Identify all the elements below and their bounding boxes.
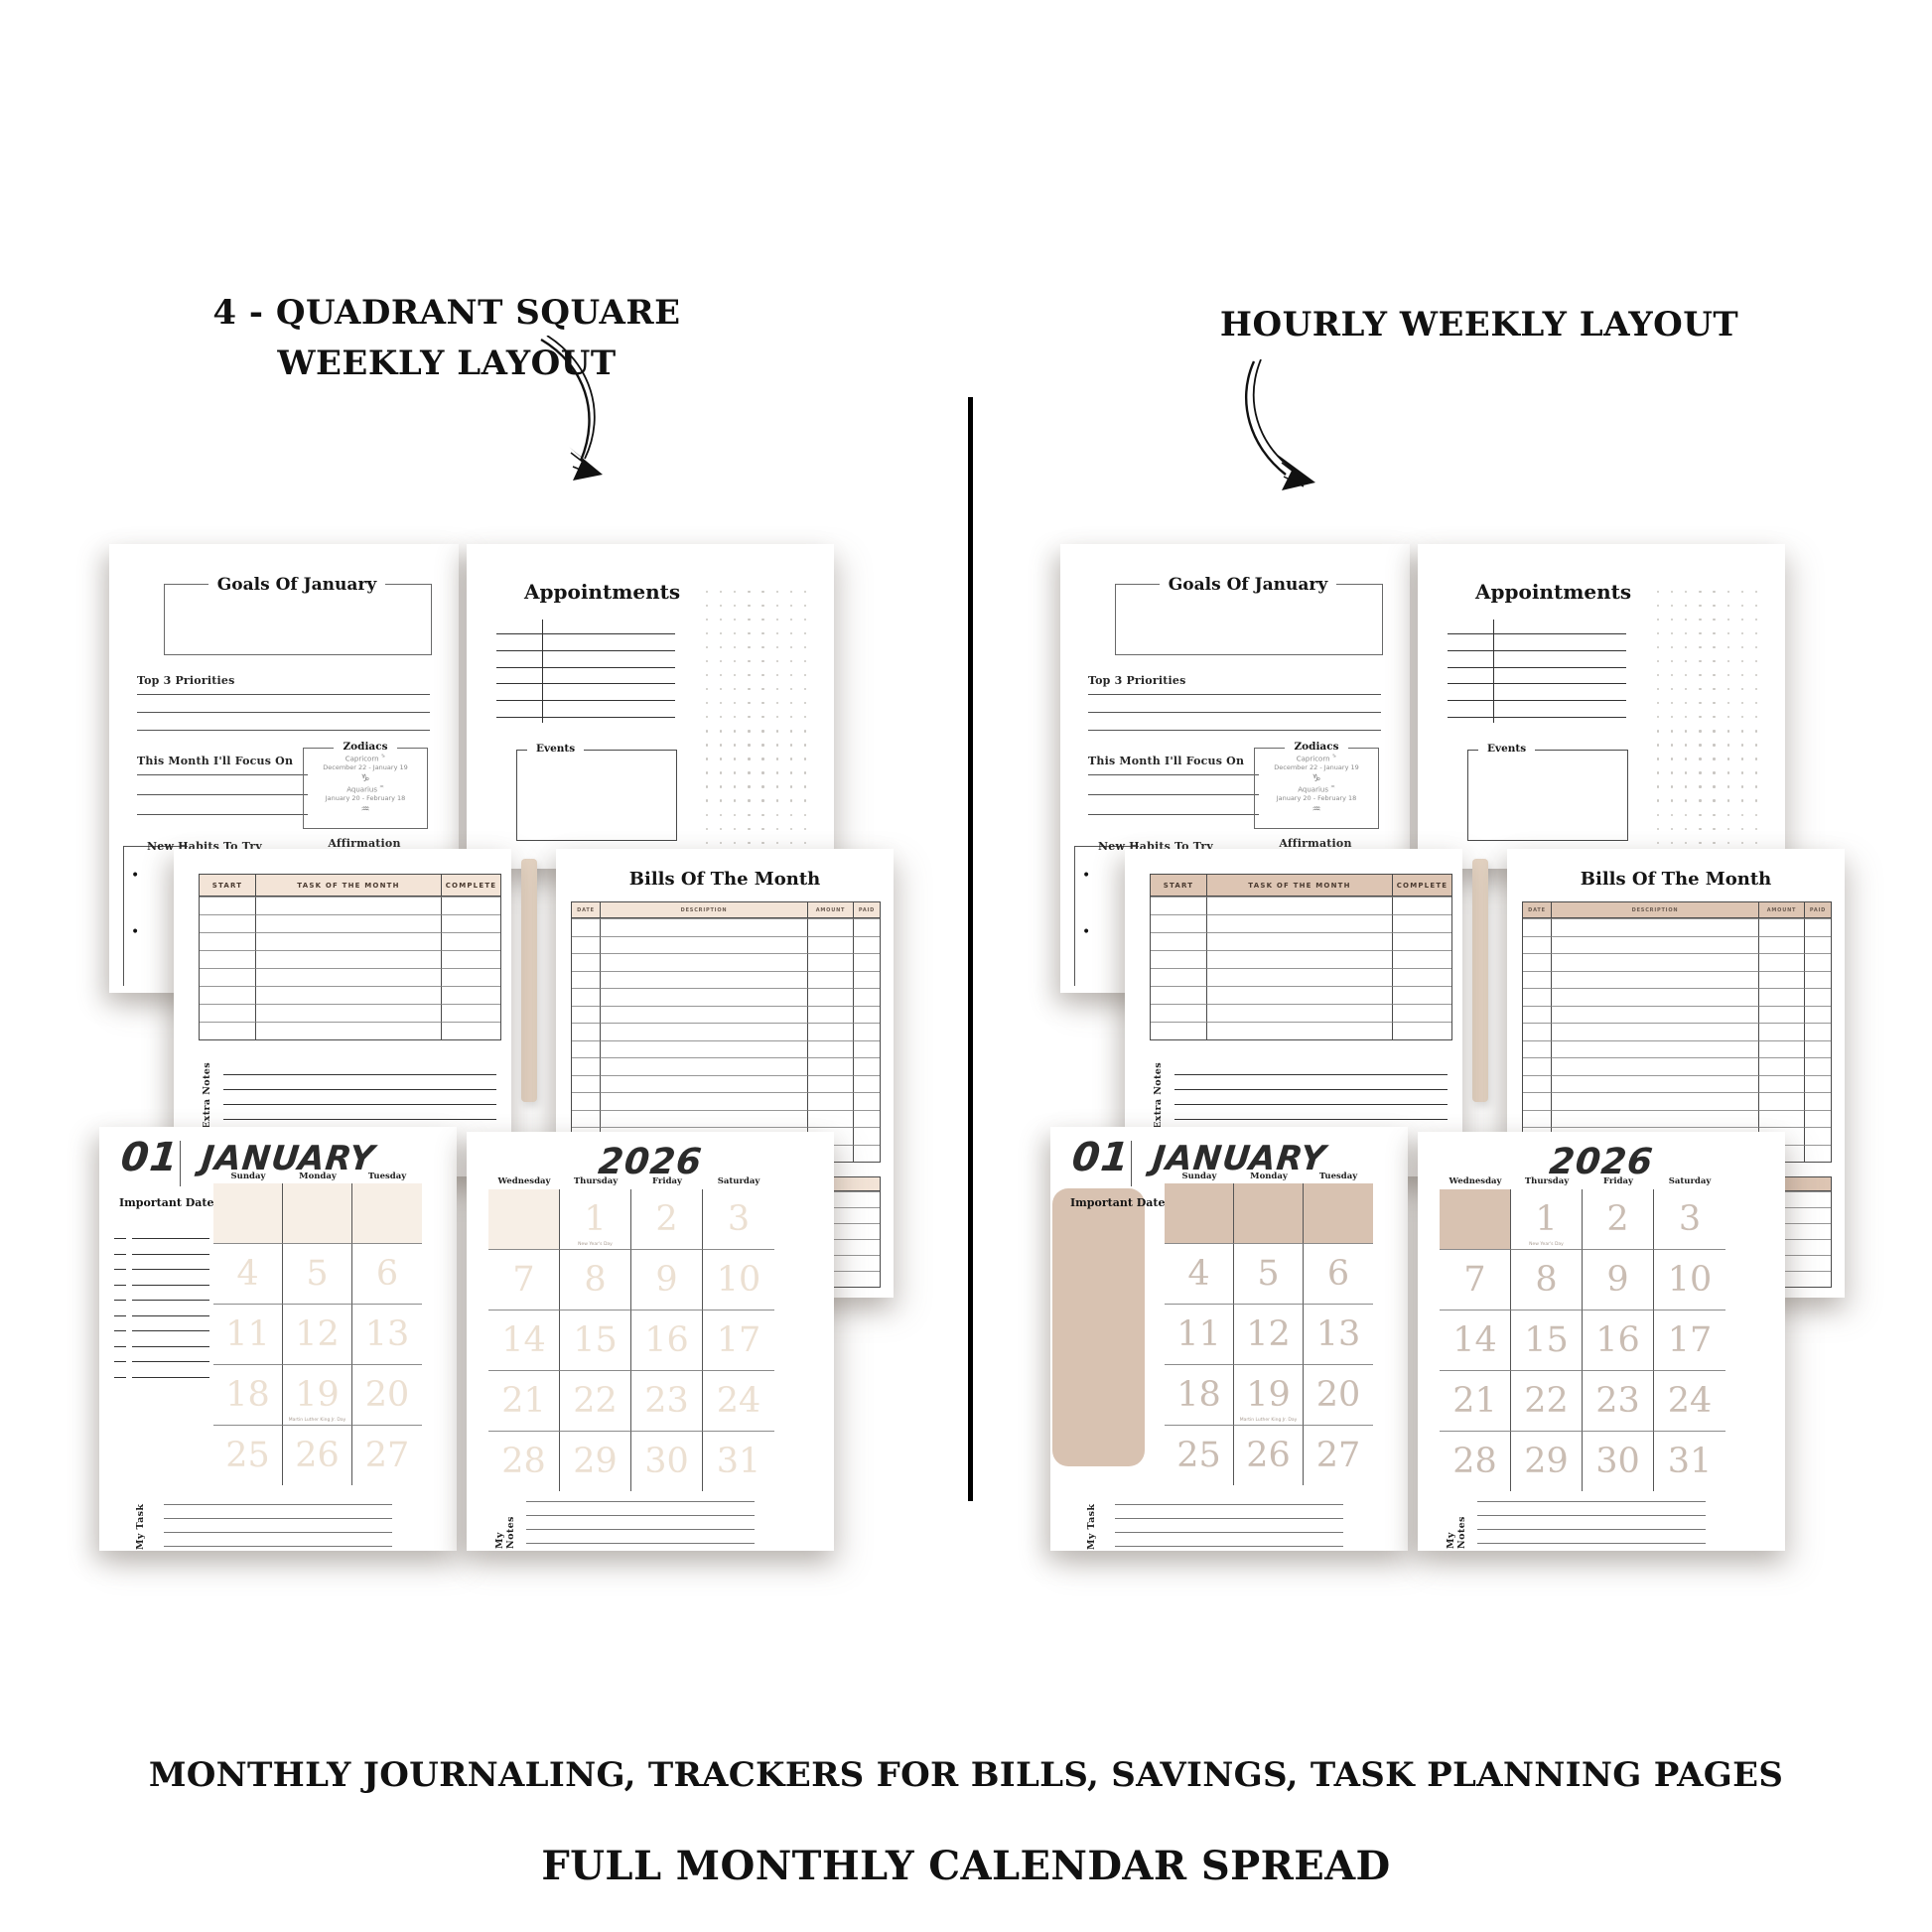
- date-number: 14: [1452, 1320, 1497, 1360]
- grid-dot: [1755, 744, 1757, 746]
- focus-lines: [137, 774, 308, 834]
- grid-dot: [1685, 605, 1687, 607]
- table-empty-cell: [600, 988, 807, 1006]
- day-header-label: Wednesday: [1440, 1176, 1511, 1186]
- grid-dot: [1727, 619, 1729, 621]
- table-empty-cell: [853, 1110, 880, 1128]
- grid-dot: [1727, 632, 1729, 634]
- grid-dot: [1741, 799, 1743, 801]
- grid-dot: [1727, 771, 1729, 773]
- table-empty-cell: [255, 968, 441, 986]
- grid-dot: [1727, 702, 1729, 704]
- grid-dot: [776, 814, 778, 816]
- calendar-cell: 16: [631, 1310, 703, 1370]
- events-label: Events: [527, 743, 584, 755]
- grid-dot: [748, 758, 750, 759]
- grid-dot: [790, 799, 792, 801]
- table-empty-cell: [255, 914, 441, 932]
- checkbox-dash: [114, 1285, 126, 1286]
- table-empty-cell: [600, 971, 807, 989]
- calendar-cell: 15: [560, 1310, 631, 1370]
- grid-dot: [761, 799, 763, 801]
- grid-dot: [790, 591, 792, 593]
- table-empty-cell: [1758, 953, 1804, 971]
- header-divider-line: [180, 1141, 181, 1186]
- bills-table: DATEDESCRIPTIONAMOUNTPAID: [571, 901, 881, 1163]
- date-number: 9: [655, 1260, 677, 1300]
- important-date-line: [114, 1315, 209, 1317]
- table-empty-cell: [807, 1057, 853, 1075]
- important-date-line: [114, 1346, 209, 1348]
- table-empty-cell: [441, 932, 500, 950]
- grid-dot: [734, 619, 736, 621]
- date-number: 24: [1668, 1381, 1713, 1421]
- calendar-cell: 8: [560, 1249, 631, 1310]
- table-empty-cell: [1551, 1110, 1758, 1128]
- table-empty-cell: [853, 1092, 880, 1110]
- grid-dot: [1713, 771, 1715, 773]
- table-empty-cell: [441, 1004, 500, 1022]
- table-header-cell: PAID: [853, 902, 880, 918]
- grid-dot: [706, 730, 708, 732]
- table-empty-cell: [1523, 1040, 1551, 1058]
- table-empty-cell: [1392, 1022, 1451, 1039]
- table-empty-cell: [572, 936, 600, 954]
- vertical-divider: [968, 397, 973, 1501]
- grid-dot: [761, 758, 763, 759]
- grid-dot: [1671, 842, 1673, 844]
- grid-dot: [1713, 828, 1715, 830]
- grid-dot: [1685, 771, 1687, 773]
- grid-dot: [1699, 730, 1701, 732]
- checkbox-dash: [114, 1238, 126, 1239]
- table-header-cell: AMOUNT: [807, 902, 853, 918]
- page-edge-strip: [1472, 859, 1488, 1102]
- grid-dot: [1685, 688, 1687, 690]
- grid-dot: [790, 771, 792, 773]
- grid-dot: [1755, 785, 1757, 787]
- table-empty-cell: [1551, 1075, 1758, 1093]
- calendar-cell: 30: [1583, 1431, 1654, 1491]
- calendar-cell: [1165, 1183, 1234, 1243]
- hourly-layout-group: Goals Of January Top 3 Priorities This M…: [1045, 536, 1860, 1564]
- grid-dot: [1657, 619, 1659, 621]
- grid-dot: [734, 688, 736, 690]
- grid-dot: [720, 814, 722, 816]
- grid-dot: [734, 814, 736, 816]
- grid-dot: [804, 605, 806, 607]
- table-empty-cell: [1804, 918, 1831, 936]
- grid-dot: [776, 660, 778, 662]
- calendar-cell: 5: [283, 1243, 352, 1304]
- grid-dot: [790, 828, 792, 830]
- table-empty-cell: [1758, 1006, 1804, 1024]
- grid-dot: [1699, 660, 1701, 662]
- rule-line: [1115, 1546, 1343, 1547]
- table-empty-cell: [1523, 936, 1551, 954]
- rule-line: [137, 814, 308, 815]
- table-empty-cell: [1804, 1145, 1831, 1163]
- grid-dot: [1755, 758, 1757, 759]
- rule-line: [526, 1529, 755, 1530]
- date-number: 3: [728, 1199, 750, 1239]
- grid-dot: [1713, 688, 1715, 690]
- rule-line: [496, 667, 675, 668]
- rule-line: [1477, 1515, 1706, 1516]
- date-number: 16: [1595, 1320, 1640, 1360]
- hand-drawn-arrow-icon: [531, 336, 625, 499]
- grid-dot: [1685, 674, 1687, 676]
- weekday-headers: WednesdayThursdayFridaySaturday: [488, 1176, 774, 1186]
- table-empty-cell: [853, 1075, 880, 1093]
- calendar-cell: [213, 1183, 283, 1243]
- grid-dot: [734, 632, 736, 634]
- checkbox-dash: [114, 1377, 126, 1378]
- date-number: 5: [1257, 1254, 1279, 1294]
- table-empty-cell: [600, 936, 807, 954]
- date-number: 24: [717, 1381, 761, 1421]
- grid-dot: [1671, 646, 1673, 648]
- grid-dot: [1755, 632, 1757, 634]
- table-empty-cell: [1758, 918, 1804, 936]
- focus-label: This Month I'll Focus On: [137, 755, 293, 767]
- grid-dot: [1657, 591, 1659, 593]
- calendar-cell: 19Martin Luther King Jr. Day: [1234, 1364, 1304, 1425]
- rule-line: [1088, 774, 1259, 775]
- date-number: 4: [236, 1254, 258, 1294]
- date-number: 21: [501, 1381, 546, 1421]
- table-empty-cell: [807, 1040, 853, 1058]
- grid-dot: [706, 716, 708, 718]
- day-header-label: Monday: [283, 1172, 352, 1181]
- checkbox-dash: [114, 1361, 126, 1362]
- table-empty-cell: [1551, 988, 1758, 1006]
- holiday-label: Martin Luther King Jr. Day: [283, 1418, 351, 1423]
- table-empty-cell: [1523, 1110, 1551, 1128]
- calendar-cell: 6: [352, 1243, 422, 1304]
- important-dates-lines: [114, 1238, 209, 1392]
- grid-dot: [1727, 674, 1729, 676]
- table-empty-cell: [1392, 914, 1451, 932]
- grid-dot: [1741, 730, 1743, 732]
- table-empty-cell: [1758, 1023, 1804, 1040]
- grid-dot: [1755, 702, 1757, 704]
- grid-dot: [1685, 828, 1687, 830]
- grid-dot: [1685, 632, 1687, 634]
- grid-dot: [1657, 688, 1659, 690]
- grid-dot: [790, 605, 792, 607]
- zodiacs-box: Zodiacs Capricorn ♑ December 22 - Januar…: [303, 748, 428, 829]
- calendar-cell: 25: [1165, 1425, 1234, 1485]
- calendar-cell: [488, 1189, 560, 1249]
- date-number: 6: [1327, 1254, 1349, 1294]
- grid-dot: [1727, 828, 1729, 830]
- table-empty-cell: [1804, 1040, 1831, 1058]
- grid-dot: [1727, 591, 1729, 593]
- grid-dot: [776, 591, 778, 593]
- grid-dot: [720, 646, 722, 648]
- calendar-cell: 26: [1234, 1425, 1304, 1485]
- rule-line: [526, 1543, 755, 1544]
- grid-dot: [734, 660, 736, 662]
- table-empty-cell: [807, 1110, 853, 1128]
- calendar-cell: 4: [1165, 1243, 1234, 1304]
- calendar-cell: 7: [1440, 1249, 1511, 1310]
- date-number: 18: [225, 1375, 270, 1415]
- calendar-cell: 20: [352, 1364, 422, 1425]
- grid-dot: [761, 814, 763, 816]
- calendar-cell: 23: [631, 1370, 703, 1431]
- table-empty-cell: [1206, 950, 1392, 968]
- day-header-label: Sunday: [1165, 1172, 1234, 1181]
- goals-title-text: Goals Of January: [1160, 575, 1337, 595]
- rule-line: [1088, 814, 1259, 815]
- grid-dot: [706, 674, 708, 676]
- grid-dot: [1685, 591, 1687, 593]
- grid-dot: [1713, 619, 1715, 621]
- table-empty-cell: [1523, 988, 1551, 1006]
- table-empty-cell: [1804, 953, 1831, 971]
- date-number: 27: [1316, 1436, 1361, 1475]
- table-empty-cell: [1523, 1006, 1551, 1024]
- grid-dot: [761, 688, 763, 690]
- grid-dot: [804, 702, 806, 704]
- rule-line: [137, 694, 430, 695]
- table-empty-cell: [1206, 897, 1392, 914]
- table-empty-cell: [1206, 914, 1392, 932]
- table-empty-cell: [600, 1057, 807, 1075]
- rule-line: [1088, 730, 1381, 731]
- goals-title: Goals Of January: [144, 575, 450, 595]
- table-empty-cell: [255, 932, 441, 950]
- day-header-label: Wednesday: [488, 1176, 560, 1186]
- calendar-cell: 10: [1654, 1249, 1725, 1310]
- write-line: [132, 1269, 209, 1270]
- grid-dot: [748, 605, 750, 607]
- table-header-cell: COMPLETE: [1392, 875, 1451, 897]
- grid-dot: [1727, 716, 1729, 718]
- grid-dot: [1671, 744, 1673, 746]
- table-header-cell: TASK OF THE MONTH: [1206, 875, 1392, 897]
- grid-dot: [734, 758, 736, 759]
- my-notes-label: My Notes: [1446, 1499, 1467, 1549]
- grid-dot: [1741, 785, 1743, 787]
- grid-dot: [1699, 814, 1701, 816]
- grid-dot: [734, 771, 736, 773]
- calendar-cell: 31: [1654, 1431, 1725, 1491]
- top-priorities-label: Top 3 Priorities: [137, 674, 234, 687]
- grid-dot: [748, 785, 750, 787]
- table-empty-cell: [600, 1006, 807, 1024]
- grid-dot: [734, 702, 736, 704]
- grid-dot: [734, 744, 736, 746]
- rule-line: [1174, 1104, 1448, 1105]
- grid-dot: [1755, 716, 1757, 718]
- grid-dot: [776, 828, 778, 830]
- calendar-cell: 8: [1511, 1249, 1583, 1310]
- calendar-cell: 24: [703, 1370, 774, 1431]
- table-empty-cell: [807, 988, 853, 1006]
- grid-dot: [748, 688, 750, 690]
- table-empty-cell: [1758, 1057, 1804, 1075]
- aquarius-water-bearer-icon: ♒: [1312, 804, 1321, 815]
- date-number: 20: [1316, 1375, 1361, 1415]
- table-empty-cell: [1206, 932, 1392, 950]
- rule-line: [1174, 1119, 1448, 1120]
- grid-dot: [1755, 619, 1757, 621]
- table-empty-cell: [1523, 1075, 1551, 1093]
- calendar-cell: 14: [1440, 1310, 1511, 1370]
- dot-grid: [1651, 591, 1763, 844]
- grid-dot: [720, 632, 722, 634]
- table-empty-cell: [441, 1022, 500, 1039]
- grid-dot: [706, 799, 708, 801]
- grid-dot: [706, 660, 708, 662]
- grid-dot: [734, 716, 736, 718]
- calendar-cell: 12: [1234, 1304, 1304, 1364]
- grid-dot: [720, 730, 722, 732]
- table-empty-cell: [600, 1110, 807, 1128]
- grid-dot: [1699, 716, 1701, 718]
- grid-dot: [804, 814, 806, 816]
- calendar-cell: 28: [488, 1431, 560, 1491]
- rule-line: [1115, 1504, 1343, 1505]
- grid-dot: [1755, 799, 1757, 801]
- grid-dot: [1699, 674, 1701, 676]
- right-headline: HOURLY WEEKLY LAYOUT: [1172, 300, 1787, 350]
- grid-dot: [720, 688, 722, 690]
- table-empty-cell: [441, 950, 500, 968]
- grid-dot: [1657, 744, 1659, 746]
- grid-dot: [1657, 716, 1659, 718]
- table-empty-cell: [1392, 968, 1451, 986]
- grid-dot: [790, 785, 792, 787]
- grid-dot: [761, 674, 763, 676]
- calendar-cell: 18: [213, 1364, 283, 1425]
- extra-notes-lines: [223, 1074, 496, 1134]
- calendar-cell: 21: [488, 1370, 560, 1431]
- table-empty-cell: [255, 1022, 441, 1039]
- grid-dot: [1685, 814, 1687, 816]
- table-empty-cell: [572, 953, 600, 971]
- aquarius-symbol: ♒: [1330, 784, 1334, 790]
- grid-dot: [1685, 716, 1687, 718]
- grid-dot: [706, 744, 708, 746]
- grid-dot: [1741, 619, 1743, 621]
- grid-dot: [720, 674, 722, 676]
- grid-dot: [748, 702, 750, 704]
- grid-dot: [790, 674, 792, 676]
- grid-dot: [1713, 716, 1715, 718]
- habit-bullet: •: [1082, 868, 1090, 884]
- grid-dot: [1685, 785, 1687, 787]
- bills-title: Bills Of The Month: [1507, 869, 1845, 890]
- grid-dot: [1713, 702, 1715, 704]
- calendar-cell: 10: [703, 1249, 774, 1310]
- date-number: 28: [501, 1442, 546, 1481]
- table-empty-cell: [1804, 1006, 1831, 1024]
- grid-dot: [1685, 744, 1687, 746]
- date-number: 23: [1595, 1381, 1640, 1421]
- grid-dot: [1699, 842, 1701, 844]
- grid-dot: [1727, 660, 1729, 662]
- table-empty-cell: [255, 986, 441, 1004]
- holiday-label: Martin Luther King Jr. Day: [1234, 1418, 1303, 1423]
- grid-dot: [1671, 674, 1673, 676]
- calendar-cell: 21: [1440, 1370, 1511, 1431]
- grid-dot: [790, 646, 792, 648]
- header-divider-line: [1131, 1141, 1132, 1186]
- left-headline: 4 - QUADRANT SQUARE WEEKLY LAYOUT: [139, 288, 755, 389]
- table-empty-cell: [572, 1075, 600, 1093]
- rule-line: [223, 1104, 496, 1105]
- grid-dot: [1657, 674, 1659, 676]
- date-number: 7: [1463, 1260, 1485, 1300]
- weekday-headers: SundayMondayTuesday: [213, 1172, 422, 1181]
- bottom-caption-line2: FULL MONTHLY CALENDAR SPREAD: [0, 1843, 1932, 1889]
- grid-dot: [706, 814, 708, 816]
- date-number: 21: [1452, 1381, 1497, 1421]
- my-task-label: My Task: [1086, 1502, 1097, 1550]
- grid-dot: [761, 646, 763, 648]
- task-table: STARTTASK OF THE MONTHCOMPLETE: [1150, 874, 1452, 1040]
- rule-line: [526, 1501, 755, 1502]
- grid-dot: [761, 619, 763, 621]
- grid-dot: [1713, 730, 1715, 732]
- table-empty-cell: [853, 918, 880, 936]
- rule-line: [1088, 694, 1381, 695]
- grid-dot: [761, 785, 763, 787]
- year-calendar-grid: 1New Year's Day2378910141516172122232428…: [488, 1189, 774, 1491]
- date-number: 31: [717, 1442, 761, 1481]
- grid-dot: [720, 619, 722, 621]
- table-header-cell: AMOUNT: [1758, 902, 1804, 918]
- grid-dot: [748, 828, 750, 830]
- year-calendar-page: 2026 WednesdayThursdayFridaySaturday 1Ne…: [467, 1132, 834, 1551]
- calendar-cell: 18: [1165, 1364, 1234, 1425]
- zodiac-sign-name: Capricorn ♑: [1297, 754, 1337, 763]
- grid-dot: [790, 688, 792, 690]
- table-empty-cell: [572, 1092, 600, 1110]
- grid-dot: [734, 799, 736, 801]
- table-empty-cell: [853, 988, 880, 1006]
- bills-title: Bills Of The Month: [556, 869, 894, 890]
- grid-dot: [776, 716, 778, 718]
- task-table: STARTTASK OF THE MONTHCOMPLETE: [199, 874, 501, 1040]
- table-empty-cell: [853, 1057, 880, 1075]
- grid-dot: [1741, 646, 1743, 648]
- rule-line: [1477, 1543, 1706, 1544]
- write-line: [132, 1285, 209, 1286]
- zodiacs-title: Zodiacs: [304, 741, 427, 753]
- date-number: 14: [501, 1320, 546, 1360]
- table-empty-cell: [1151, 986, 1206, 1004]
- grid-dot: [761, 828, 763, 830]
- capricorn-symbol: ♑: [381, 754, 385, 759]
- grid-dot: [761, 730, 763, 732]
- table-empty-cell: [1758, 1075, 1804, 1093]
- table-empty-cell: [200, 968, 255, 986]
- grid-dot: [804, 785, 806, 787]
- grid-dot: [761, 771, 763, 773]
- table-empty-cell: [1523, 1092, 1551, 1110]
- table-empty-cell: [200, 897, 255, 914]
- table-empty-cell: [853, 936, 880, 954]
- calendar-cell: 9: [1583, 1249, 1654, 1310]
- grid-dot: [776, 632, 778, 634]
- grid-dot: [1699, 771, 1701, 773]
- grid-dot: [1657, 660, 1659, 662]
